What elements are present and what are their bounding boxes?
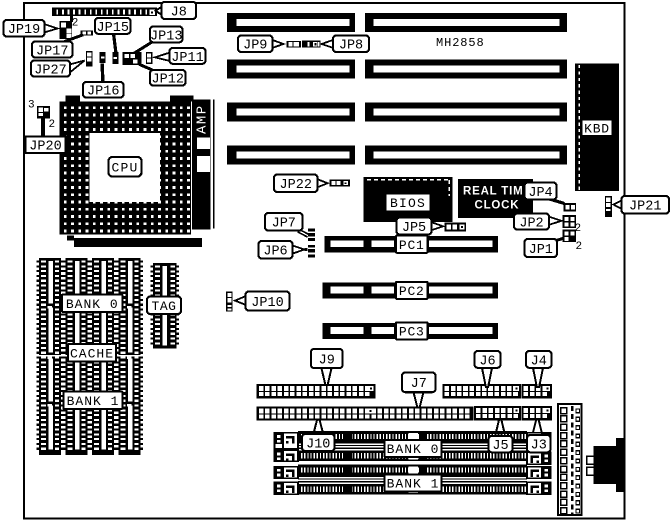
svg-text:JP21: JP21 bbox=[629, 200, 661, 215]
svg-text:JP2: JP2 bbox=[519, 216, 543, 231]
svg-text:REAL TIME: REAL TIME bbox=[463, 186, 532, 198]
svg-text:JP7: JP7 bbox=[272, 217, 296, 232]
svg-text:3: 3 bbox=[28, 100, 35, 112]
svg-text:J6: J6 bbox=[479, 354, 495, 369]
svg-text:JP17: JP17 bbox=[36, 44, 68, 59]
svg-text:2: 2 bbox=[49, 119, 56, 131]
svg-text:J5: J5 bbox=[492, 439, 508, 454]
svg-text:BANK 0: BANK 0 bbox=[66, 297, 119, 312]
svg-text:JP22: JP22 bbox=[280, 178, 312, 193]
svg-text:J7: J7 bbox=[411, 377, 427, 392]
svg-text:CACHE: CACHE bbox=[70, 346, 114, 361]
svg-text:JP12: JP12 bbox=[152, 73, 184, 88]
svg-text:CLOCK: CLOCK bbox=[475, 200, 520, 212]
svg-text:PC3: PC3 bbox=[399, 325, 425, 340]
svg-text:BANK 1: BANK 1 bbox=[387, 477, 440, 492]
svg-text:JP5: JP5 bbox=[402, 221, 426, 236]
svg-text:J3: J3 bbox=[531, 439, 547, 454]
svg-text:2: 2 bbox=[576, 241, 583, 253]
svg-text:JP20: JP20 bbox=[29, 140, 61, 155]
svg-text:J4: J4 bbox=[531, 354, 547, 369]
svg-text:PC2: PC2 bbox=[399, 284, 425, 299]
svg-text:JP4: JP4 bbox=[528, 186, 552, 201]
svg-text:J10: J10 bbox=[306, 437, 330, 452]
svg-text:JP11: JP11 bbox=[171, 51, 203, 66]
svg-text:JP10: JP10 bbox=[251, 296, 283, 311]
svg-text:JP13: JP13 bbox=[150, 29, 182, 44]
svg-text:AMP: AMP bbox=[195, 104, 211, 134]
svg-text:JP1: JP1 bbox=[529, 243, 553, 258]
svg-text:JP8: JP8 bbox=[339, 39, 363, 54]
svg-text:TAG: TAG bbox=[152, 299, 177, 314]
svg-text:JP27: JP27 bbox=[34, 63, 66, 78]
svg-text:PC1: PC1 bbox=[399, 238, 425, 253]
svg-text:J8: J8 bbox=[171, 5, 187, 20]
svg-text:J9: J9 bbox=[319, 353, 335, 368]
svg-text:JP15: JP15 bbox=[97, 21, 129, 36]
svg-text:BANK 0: BANK 0 bbox=[387, 442, 440, 457]
svg-text:KBD: KBD bbox=[584, 121, 610, 136]
svg-text:JP9: JP9 bbox=[243, 39, 267, 54]
svg-text:BIOS: BIOS bbox=[390, 196, 426, 211]
svg-text:JP6: JP6 bbox=[263, 245, 287, 260]
svg-text:CPU: CPU bbox=[111, 160, 138, 175]
svg-text:2: 2 bbox=[72, 18, 79, 30]
svg-text:BANK 1: BANK 1 bbox=[67, 394, 120, 409]
svg-text:JP19: JP19 bbox=[8, 23, 40, 38]
svg-text:JP16: JP16 bbox=[87, 85, 119, 100]
svg-text:MH2858: MH2858 bbox=[436, 36, 485, 50]
